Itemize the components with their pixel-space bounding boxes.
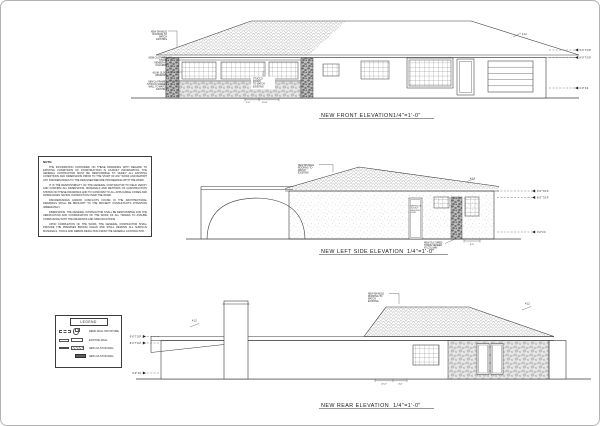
side-roof-note-line: EXISTING: [298, 173, 309, 175]
front-window-medium: [361, 61, 389, 79]
notes-paragraph: DISCREPANCIES AND/OR CONFLICTS FOUND IN …: [43, 199, 147, 209]
left-side-elevation: [186, 163, 535, 244]
side-marker-finish-floor: 0'-0" F.F.: [537, 231, 546, 234]
legend-row-new-stud: NEW 2x4 STUD WALL: [59, 346, 118, 351]
notes-paragraph: UPON COMPLETION OF THE WORK, THE GENERAL…: [43, 223, 147, 233]
rear-marker-top-plate-8: 8'-0" T.O.P.: [130, 342, 142, 345]
front-elevation: [131, 21, 579, 101]
legend-symbols-new-stud: [59, 346, 89, 351]
front-stone-column-left: [166, 58, 179, 98]
legend-label: EXISTING WALL: [89, 339, 108, 342]
rear-elevation-marker-glyphs: [143, 335, 146, 375]
legend-box: LEGEND DEMO WALL OR FIXTURE EXISTING WAL…: [55, 315, 122, 368]
legend-row-new-shear: NEW 2x6 STUD WALL: [59, 354, 118, 359]
front-bay-window-2: [221, 62, 265, 79]
front-marker-top-plate-9: 9'-0" T.O.P.: [580, 49, 592, 52]
rear-roof-note-line: EXISTING: [368, 301, 379, 303]
rear-elevation-title: NEW REAR ELEVATION: [321, 403, 389, 409]
new-stud-wall-symbol-a: [59, 347, 69, 350]
front-screenwall-note-line: NEW 2x FRAMED: [148, 80, 167, 83]
notes-paragraph: DIMENSIONS: THE GENERAL CONTRACTOR SHALL…: [43, 211, 147, 221]
notes-paragraph: IT IS THE RESPONSIBILITY OF THE GENERAL …: [43, 184, 147, 197]
side-window-small: [434, 197, 449, 208]
front-elevation-scale: 1/4"=1'-0": [393, 113, 421, 119]
legend-symbols-existing: [59, 338, 89, 343]
front-stone-note-line: VENEER AT: [154, 62, 167, 65]
side-roof-slope-label: 4:12: [470, 178, 475, 181]
side-door-note-line: 3'-0"x6'-8": [411, 208, 419, 210]
legend-symbols-demo: [59, 328, 89, 335]
front-stone-column-right: [301, 58, 313, 98]
front-dim-2: 10'-0": [262, 102, 268, 104]
rear-roof-note-line: MATCH: [368, 298, 376, 301]
side-stone-column: [451, 197, 462, 239]
rear-dim-1: 21'-0": [381, 384, 387, 386]
side-window-right: [465, 197, 479, 216]
front-garage-door: [488, 61, 533, 92]
side-door-note-line: NEW SGL DR.: [411, 206, 422, 208]
rear-marker-top-plate-9: 9'-0" T.O.P.: [130, 336, 142, 339]
side-door-note-line: SELF-CLSG.: [411, 210, 421, 212]
front-bay-window-3: [269, 62, 298, 79]
front-stone-note-line: COLUMNS: [156, 65, 168, 67]
side-door: [409, 198, 422, 239]
existing-wall-symbol-b: [71, 338, 83, 343]
rear-door-right: [491, 344, 503, 375]
legend-label: DEMO WALL OR FIXTURE: [89, 330, 119, 333]
drawing-sheet: NEW SHINGLE ROOFING TO MATCH EXISTING NE…: [0, 0, 600, 426]
rear-door-left: [477, 344, 489, 375]
front-roof-slope-label: 4:12: [522, 33, 527, 36]
side-dim-1: 4'-0": [470, 244, 475, 246]
demo-wall-symbol: [59, 330, 71, 334]
rear-roof-slope-right-label: 4:12: [525, 303, 530, 306]
front-roof-note-line: MATCH: [159, 36, 167, 39]
notes-heading: NOTE:: [43, 160, 147, 164]
side-marker-top-plate-9: 9'-0" T.O.P.: [537, 190, 549, 193]
rear-marker-finish-floor: 0'-0" F.F.: [132, 372, 141, 375]
legend-title: LEGEND: [70, 318, 108, 326]
new-stud-wall-symbol-b: [71, 346, 84, 351]
side-elevation-title: NEW LEFT SIDE ELEVATION: [321, 249, 404, 255]
side-stucco-wall: [289, 191, 494, 239]
legend-label: NEW 2x4 STUD WALL: [89, 347, 114, 350]
rear-roof-slope-left-label: 4:12: [192, 320, 197, 323]
front-screenwall-note-line: EXISTING: [156, 89, 167, 91]
notes-paragraph: THE INFORMATION CONTAINED ON THESE DRAWI…: [43, 166, 147, 182]
legend-label: NEW 2x6 STUD WALL: [89, 355, 114, 358]
side-elevation-scale: 1/4"=1'-0": [407, 249, 435, 255]
front-screenwall-note-line: WALL TO MATCH: [149, 86, 168, 89]
rear-elevation: [136, 292, 591, 383]
front-roof-shingles: [156, 21, 346, 55]
legend-row-demo: DEMO WALL OR FIXTURE: [59, 328, 118, 335]
front-elevation-title: NEW FRONT ELEVATION: [321, 113, 393, 119]
front-window-note-line: ALUM. SLDG.: [152, 71, 167, 74]
front-stucco-note-line: TO MATCH: [253, 83, 265, 86]
side-elevation-marker-glyphs: [532, 190, 535, 234]
new-shear-wall-symbol: [75, 354, 86, 359]
rear-chimney: [224, 301, 248, 379]
side-marker-top-plate-8: 8'-0" T.O.P.: [537, 197, 549, 200]
front-bay-window-1: [182, 62, 216, 79]
front-stucco-note-line: EXISTING: [253, 86, 264, 88]
rear-elevation-scale: 1/4"=1'-0": [393, 403, 421, 409]
front-marker-finish-floor: 0'-0" F.F.: [580, 87, 589, 90]
front-window-large: [409, 60, 451, 86]
side-roof-note-line: MATCH: [298, 169, 306, 172]
legend-symbols-new-shear: [59, 354, 89, 359]
front-roof-note-line: EXISTING: [156, 39, 167, 41]
fixture-symbol: [73, 328, 79, 335]
rear-roof-shingles: [364, 307, 554, 337]
rear-window: [413, 345, 439, 365]
side-door-note-line: DOOR: [411, 212, 417, 214]
rear-dim-2: 4'-0": [398, 384, 403, 386]
front-window-small: [323, 64, 339, 76]
legend-row-existing: EXISTING WALL: [59, 338, 118, 343]
existing-wall-symbol-a: [59, 339, 69, 342]
front-stone-wainscot: [179, 81, 301, 98]
front-dim-1: 3'-0": [246, 102, 251, 104]
front-window-note-line: WINDOWS: [155, 75, 167, 77]
general-notes-box: NOTE: THE INFORMATION CONTAINED ON THESE…: [38, 156, 152, 237]
front-marker-top-plate-8: 8'-0" T.O.P.: [580, 57, 592, 60]
